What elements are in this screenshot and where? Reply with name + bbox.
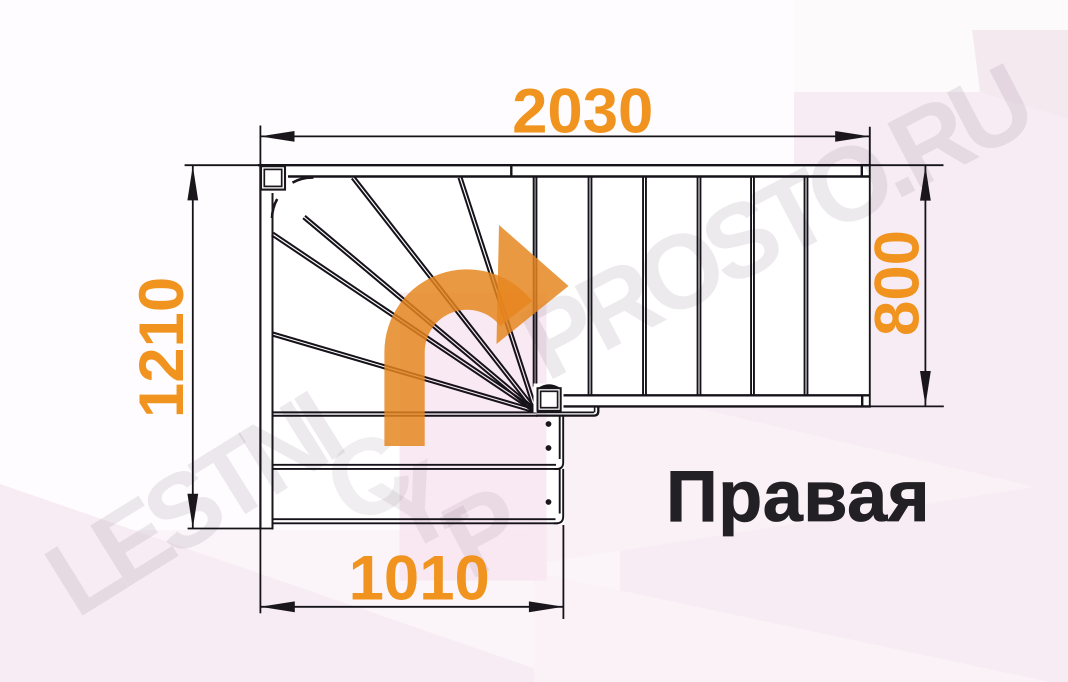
svg-text:1010: 1010 [349,544,490,614]
svg-text:800: 800 [863,230,933,336]
svg-text:1210: 1210 [127,277,197,418]
svg-text:2030: 2030 [512,77,653,147]
svg-text:Правая: Правая [666,457,930,537]
